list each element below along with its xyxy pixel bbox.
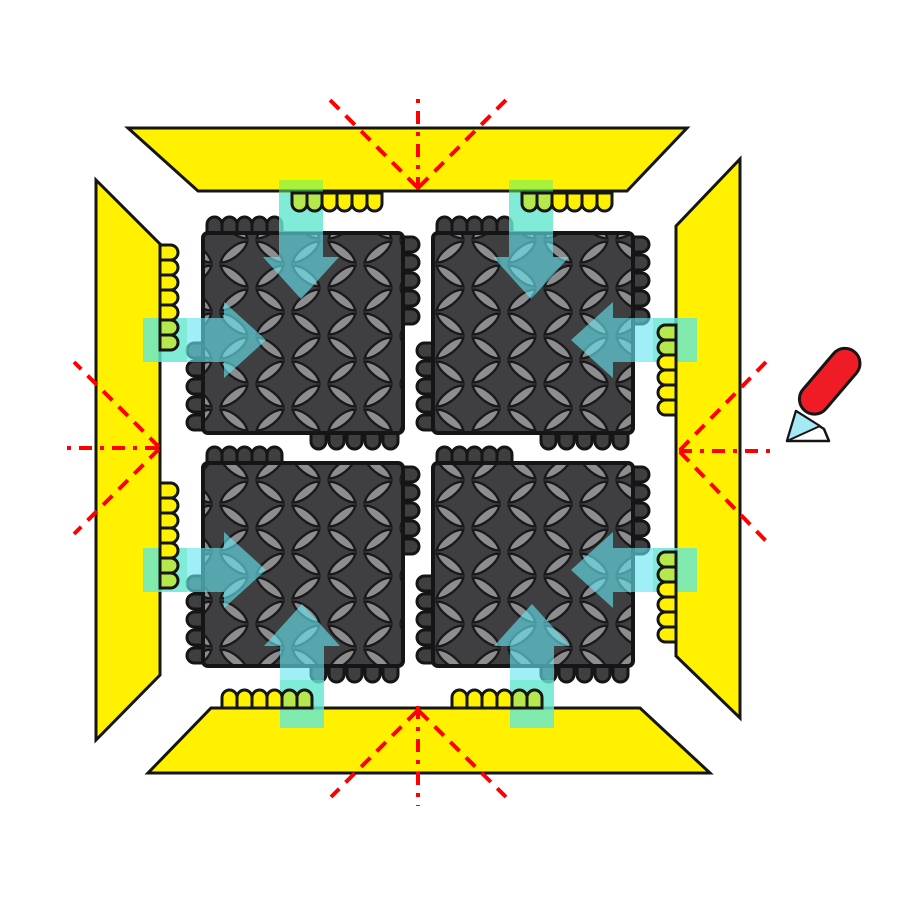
tile-connector-bump [482, 217, 497, 233]
tile-connector-bump [633, 291, 649, 306]
ramp-connector-bump-yellow [597, 193, 612, 211]
ramp-connector-bump-green [658, 325, 676, 340]
tile-connector-bump [437, 447, 452, 463]
ramp-top [128, 128, 687, 191]
ramp-connector-bump-yellow [452, 690, 467, 708]
tile-connector-bump [403, 255, 419, 270]
tile-connector-bump [417, 594, 433, 609]
tile-connector-bump [403, 503, 419, 518]
ramp-connector-bump-yellow [482, 690, 497, 708]
ramp-connector-bump-green [282, 690, 297, 708]
ramp-connector-bump-yellow [658, 385, 676, 400]
tile-connector-bump [417, 361, 433, 376]
ramp-connector-bump-yellow [160, 275, 178, 290]
tile-connector-bump [187, 397, 203, 412]
tile-connector-bump [417, 379, 433, 394]
tile-connector-bump [403, 291, 419, 306]
ramp-connectors-top-1 [292, 193, 382, 211]
ramp-connector-bump-yellow [237, 690, 252, 708]
tile-connector-bump [417, 630, 433, 645]
tile-connector-bump [595, 666, 610, 682]
ramp-connector-bump-yellow [552, 193, 567, 211]
tile-connector-bump [347, 666, 362, 682]
ramp-connector-bump-green [160, 335, 178, 350]
ramp-connector-bump-yellow [567, 193, 582, 211]
ramp-connector-bump-green [512, 690, 527, 708]
ramp-connector-bump-yellow [658, 400, 676, 415]
ramp-connector-bump-yellow [267, 690, 282, 708]
tile-connector-bump [207, 217, 222, 233]
tile-connector-bump [222, 447, 237, 463]
tile-connector-bump [403, 521, 419, 536]
tile-connector-bump [365, 666, 380, 682]
ramp-connector-bump-green [527, 690, 542, 708]
ramp-connector-bump-yellow [160, 483, 178, 498]
tile-connector-bump [207, 447, 222, 463]
ramp-connector-bump-yellow [160, 290, 178, 305]
ramp-connector-bump-yellow [658, 355, 676, 370]
ramp-connectors-left-2 [160, 483, 178, 588]
ramp-connector-bump-yellow [322, 193, 337, 211]
tile-connector-bump [417, 576, 433, 591]
ramp-connector-bump-green [658, 340, 676, 355]
tile-connector-bump [437, 217, 452, 233]
tile-connector-bump [633, 467, 649, 482]
tile-connector-bump [633, 255, 649, 270]
tile-connector-bump [252, 447, 267, 463]
tile-connector-bump [633, 273, 649, 288]
ramp-connectors-right-2 [658, 552, 676, 642]
ramp-connector-bump-yellow [352, 193, 367, 211]
tile-connector-bump [577, 666, 592, 682]
ramp-connectors-right-1 [658, 325, 676, 415]
ramp-connector-bump-yellow [658, 612, 676, 627]
ramp-connector-bump-yellow [367, 193, 382, 211]
ramp-connector-bump-green [292, 193, 307, 211]
ramp-connector-bump-green [160, 320, 178, 335]
tile-connector-bump [613, 666, 628, 682]
tile-connector-bump [365, 433, 380, 449]
tile-connector-bump [633, 503, 649, 518]
tile-connector-bump [187, 648, 203, 663]
tile-connector-bump [187, 415, 203, 430]
ramp-connector-bump-yellow [160, 245, 178, 260]
ramp-connector-bump-green [537, 193, 552, 211]
tile-connector-bump [403, 237, 419, 252]
tile-connector-bump [559, 433, 574, 449]
tile-connector-bump [559, 666, 574, 682]
ramp-connector-bump-yellow [160, 260, 178, 275]
tile-connector-bump [541, 433, 556, 449]
ramp-connector-bump-yellow [658, 627, 676, 642]
ramp-connector-bump-yellow [658, 582, 676, 597]
tile-connector-bump [267, 447, 282, 463]
ramp-connector-bump-yellow [160, 305, 178, 320]
ramp-connector-bump-yellow [467, 690, 482, 708]
tile-connector-bump [187, 630, 203, 645]
ramp-connector-bump-green [522, 193, 537, 211]
tile-connector-bump [383, 433, 398, 449]
tile-connector-bump [347, 433, 362, 449]
ramp-connector-bump-yellow [337, 193, 352, 211]
tile-connector-bump [633, 237, 649, 252]
ramp-connector-bump-yellow [497, 690, 512, 708]
tile-connector-bump [467, 217, 482, 233]
tile-connector-bump [417, 648, 433, 663]
tile-connector-bump [577, 433, 592, 449]
tile-connector-bump [467, 447, 482, 463]
ramp-connectors-left-1 [160, 245, 178, 350]
ramp-connectors-bottom-2 [452, 690, 542, 708]
tile-connector-bump [595, 433, 610, 449]
tile-connector-bump [252, 217, 267, 233]
ramp-connector-bump-green [658, 567, 676, 582]
tile-connector-bump [237, 217, 252, 233]
ramp-connector-bump-yellow [658, 370, 676, 385]
tile-connector-bump [452, 217, 467, 233]
ramp-connector-bump-yellow [160, 513, 178, 528]
tile-connector-bump [417, 343, 433, 358]
ramp-connector-bump-yellow [252, 690, 267, 708]
tile-connector-bump [329, 433, 344, 449]
tile-connector-bump [403, 273, 419, 288]
ramp-connectors-bottom-1 [222, 690, 312, 708]
tile-connector-bump [497, 447, 512, 463]
tile-connector-bump [187, 594, 203, 609]
ramp-left [96, 180, 160, 740]
tile-connector-bump [417, 397, 433, 412]
tile-connector-bump [417, 415, 433, 430]
tile-connector-bump [417, 612, 433, 627]
tile-connector-bump [187, 361, 203, 376]
tile-connector-bump [329, 666, 344, 682]
tile-connector-bump [187, 379, 203, 394]
tile-connector-bump [403, 309, 419, 324]
tile-connector-bump [403, 467, 419, 482]
ramp-connector-bump-green [160, 573, 178, 588]
tile-connector-bump [633, 521, 649, 536]
tile-connector-bump [237, 447, 252, 463]
tile-connector-bump [311, 433, 326, 449]
ramp-connector-bump-yellow [658, 597, 676, 612]
tile-connector-bump [383, 666, 398, 682]
ramp-connector-bump-green [160, 558, 178, 573]
tile-connector-bump [613, 433, 628, 449]
tile-connector-bump [482, 447, 497, 463]
ramp-bottom [148, 708, 710, 773]
ramp-connector-bump-yellow [160, 498, 178, 513]
tile-connector-bump [452, 447, 467, 463]
ramp-right [676, 159, 740, 718]
modular-mat-assembly-diagram [0, 0, 900, 900]
ramp-connector-bump-green [658, 552, 676, 567]
diagram-canvas [0, 0, 900, 900]
tile-connector-bump [403, 485, 419, 500]
ramp-connector-bump-green [307, 193, 322, 211]
tile-connector-bump [403, 539, 419, 554]
ramp-connector-bump-yellow [582, 193, 597, 211]
ramp-connector-bump-yellow [160, 528, 178, 543]
tile-connector-bump [222, 217, 237, 233]
tile-connector-bump [187, 612, 203, 627]
ramp-connector-bump-green [297, 690, 312, 708]
ramp-connectors-top-2 [522, 193, 612, 211]
ramp-connector-bump-yellow [222, 690, 237, 708]
ramp-connector-bump-yellow [160, 543, 178, 558]
tile-connector-bump [633, 485, 649, 500]
